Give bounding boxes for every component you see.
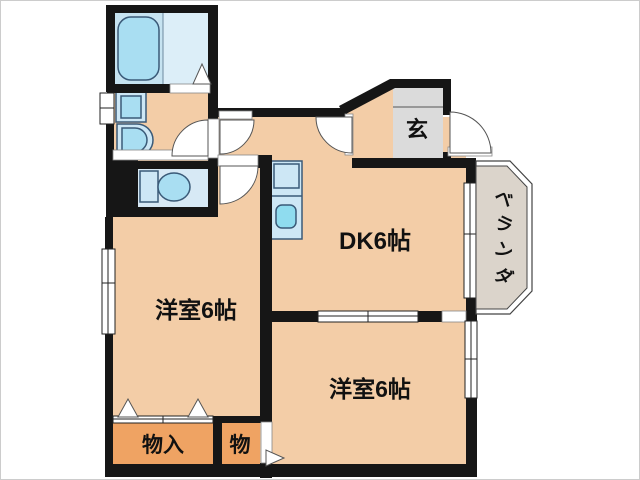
bedroom-left-door-opening <box>218 155 258 166</box>
dk-label: DK6帖 <box>339 228 411 255</box>
wash-basin-bowl <box>122 128 147 152</box>
sliding-door-dk-south <box>318 311 418 322</box>
wall <box>258 155 272 168</box>
veranda <box>476 161 532 314</box>
door-leaf-open <box>219 111 252 119</box>
window-bedroom-left-west <box>102 249 115 334</box>
toilet-tank-icon <box>140 171 158 202</box>
wall <box>208 5 218 120</box>
bedroom-right-label: 洋室6帖 <box>329 376 411 402</box>
wall <box>106 207 218 217</box>
wall <box>466 398 477 468</box>
wall <box>106 5 115 92</box>
wall <box>105 217 113 250</box>
wall <box>390 79 450 88</box>
window-bedroom-right-east <box>465 321 477 398</box>
wall <box>222 416 260 423</box>
wall <box>466 158 476 184</box>
bath-door-opening <box>170 84 210 93</box>
wall <box>443 79 451 115</box>
wall <box>466 297 477 322</box>
window-dk-east <box>464 183 476 298</box>
storage-main-label: 物入 <box>142 433 184 457</box>
wall <box>418 311 442 322</box>
wall <box>213 416 222 464</box>
wall <box>107 84 170 93</box>
wall <box>352 158 466 168</box>
wall <box>260 168 272 417</box>
floorplan-page: DK6帖 洋室6帖 洋室6帖 玄 物入 物 ベ ラ ン ダ <box>0 0 640 480</box>
storage-small-label: 物 <box>230 433 251 457</box>
wall <box>105 464 477 477</box>
wall <box>107 5 218 13</box>
wall <box>260 311 318 322</box>
toilet-bowl-icon <box>158 173 190 201</box>
washroom-door-opening <box>208 119 219 158</box>
bathtub-icon <box>118 17 159 80</box>
window-washroom-west <box>100 93 114 124</box>
kitchen-sink-basin <box>274 164 299 188</box>
entrance-label: 玄 <box>406 117 428 142</box>
floorplan-drawing: DK6帖 洋室6帖 洋室6帖 玄 物入 物 ベ ラ ン ダ <box>0 0 640 480</box>
wall <box>105 334 113 464</box>
kitchen-stove-icon <box>276 205 296 228</box>
washing-machine-drum <box>121 96 141 118</box>
bedroom-left-label: 洋室6帖 <box>155 297 237 323</box>
dk-south-gap <box>442 311 466 322</box>
